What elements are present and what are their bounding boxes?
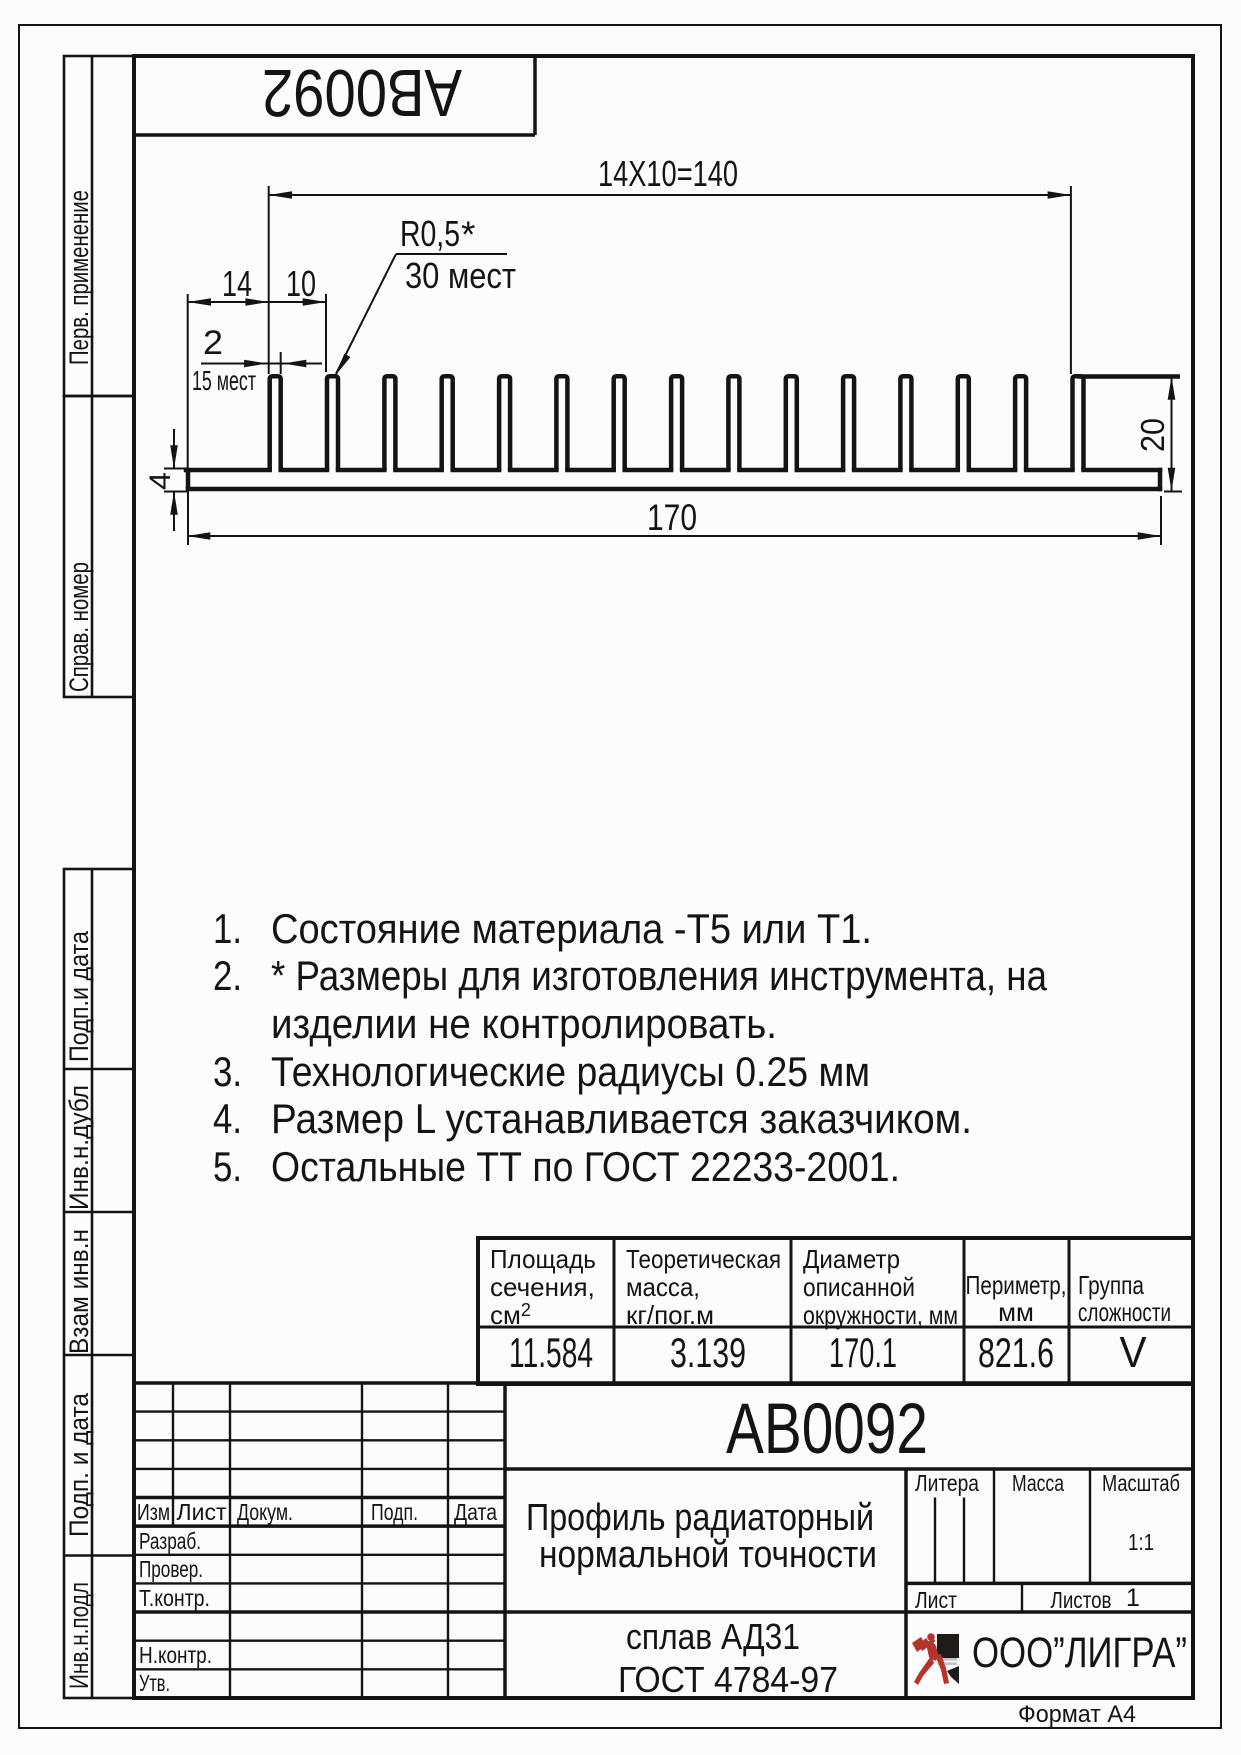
svg-text:Масштаб: Масштаб — [1102, 1470, 1180, 1496]
svg-text:R0,5: R0,5 — [400, 213, 460, 254]
svg-text:14: 14 — [222, 263, 252, 304]
svg-text:20: 20 — [1134, 418, 1171, 452]
svg-text:Группа: Группа — [1078, 1270, 1144, 1300]
svg-text:14Х10=140: 14Х10=140 — [598, 153, 738, 194]
svg-text:170: 170 — [647, 497, 697, 538]
svg-text:1:1: 1:1 — [1128, 1529, 1154, 1555]
svg-text:АВ0092: АВ0092 — [726, 1390, 928, 1469]
svg-text:Т.контр.: Т.контр. — [139, 1585, 210, 1611]
svg-text:Технологические радиусы 0.25 м: Технологические радиусы 0.25 мм — [271, 1048, 870, 1095]
svg-text:Литера: Литера — [915, 1470, 979, 1496]
svg-text:окружности, мм: окружности, мм — [803, 1300, 958, 1330]
svg-text:Формат А4: Формат А4 — [1018, 1701, 1136, 1728]
svg-text:Лист: Лист — [177, 1499, 227, 1525]
svg-text:Подп. и дата: Подп. и дата — [64, 1392, 94, 1537]
svg-text:Теоретическая: Теоретическая — [626, 1244, 781, 1274]
svg-text:15 мест: 15 мест — [192, 365, 256, 396]
svg-text:Периметр,: Периметр, — [966, 1270, 1067, 1300]
svg-text:Разраб.: Разраб. — [139, 1528, 201, 1554]
svg-text:Изм: Изм — [137, 1499, 170, 1525]
svg-text:2: 2 — [203, 324, 223, 362]
svg-text:Перв. применение: Перв. применение — [64, 190, 94, 365]
svg-text:сплав АД31: сплав АД31 — [626, 1616, 800, 1657]
svg-text:V: V — [1120, 1328, 1148, 1377]
svg-text:мм: мм — [998, 1297, 1034, 1327]
svg-text:2.: 2. — [213, 952, 242, 999]
svg-text:1.: 1. — [213, 905, 242, 952]
svg-text:кг/пог.м: кг/пог.м — [626, 1300, 714, 1330]
svg-text:3.: 3. — [213, 1048, 242, 1095]
svg-text:Дата: Дата — [454, 1499, 497, 1525]
svg-text:10: 10 — [286, 263, 316, 304]
svg-text:170.1: 170.1 — [829, 1329, 897, 1376]
svg-text:Н.контр.: Н.контр. — [139, 1642, 212, 1668]
svg-text:сложности: сложности — [1078, 1297, 1171, 1327]
svg-text:Остальные ТТ по ГОСТ 22233-200: Остальные ТТ по ГОСТ 22233-2001. — [271, 1143, 900, 1190]
svg-text:сечения,: сечения, — [490, 1272, 595, 1302]
svg-text:Справ. номер: Справ. номер — [64, 562, 94, 692]
svg-text:30 мест: 30 мест — [405, 255, 516, 296]
svg-text:Подп.: Подп. — [371, 1499, 418, 1525]
svg-text:3.139: 3.139 — [670, 1329, 746, 1376]
svg-text:Инв.н.подл: Инв.н.подл — [64, 1582, 94, 1689]
svg-text:нормальной точности: нормальной точности — [539, 1534, 877, 1576]
svg-text:*: * — [461, 214, 475, 255]
svg-text:* Размеры для изготовления инс: * Размеры для изготовления инструмента, … — [271, 952, 1048, 999]
svg-text:изделии не контролировать.: изделии не контролировать. — [271, 1000, 777, 1047]
svg-text:ООО”ЛИГРА”: ООО”ЛИГРА” — [972, 1629, 1187, 1677]
svg-text:5.: 5. — [213, 1143, 242, 1190]
svg-text:Диаметр: Диаметр — [803, 1244, 900, 1274]
svg-text:Взам инв.н: Взам инв.н — [64, 1229, 94, 1354]
svg-text:Подп.и дата: Подп.и дата — [64, 930, 94, 1062]
svg-text:Листов: Листов — [1051, 1587, 1112, 1613]
svg-text:4.: 4. — [213, 1095, 242, 1142]
svg-text:Инв.н.дубл: Инв.н.дубл — [64, 1085, 94, 1210]
svg-text:Профиль радиаторный: Профиль радиаторный — [526, 1497, 874, 1539]
svg-text:821.6: 821.6 — [978, 1329, 1054, 1376]
svg-text:Состояние материала -Т5 или Т1: Состояние материала -Т5 или Т1. — [271, 905, 872, 952]
svg-text:масса,: масса, — [626, 1272, 700, 1302]
svg-text:4: 4 — [144, 472, 177, 490]
svg-text:Провер.: Провер. — [139, 1556, 203, 1582]
svg-text:Докум.: Докум. — [237, 1499, 293, 1525]
svg-text:Площадь: Площадь — [490, 1244, 596, 1274]
svg-text:ГОСТ 4784-97: ГОСТ 4784-97 — [618, 1659, 838, 1700]
svg-text:Лист: Лист — [915, 1587, 957, 1613]
svg-text:Утв.: Утв. — [139, 1670, 170, 1696]
svg-text:Размер L устанавливается заказ: Размер L устанавливается заказчиком. — [271, 1095, 972, 1142]
svg-text:Масса: Масса — [1012, 1470, 1064, 1496]
svg-text:описанной: описанной — [803, 1272, 915, 1302]
svg-text:1: 1 — [1126, 1584, 1140, 1612]
svg-text:11.584: 11.584 — [509, 1329, 593, 1376]
svg-text:АВ0092: АВ0092 — [262, 55, 462, 130]
